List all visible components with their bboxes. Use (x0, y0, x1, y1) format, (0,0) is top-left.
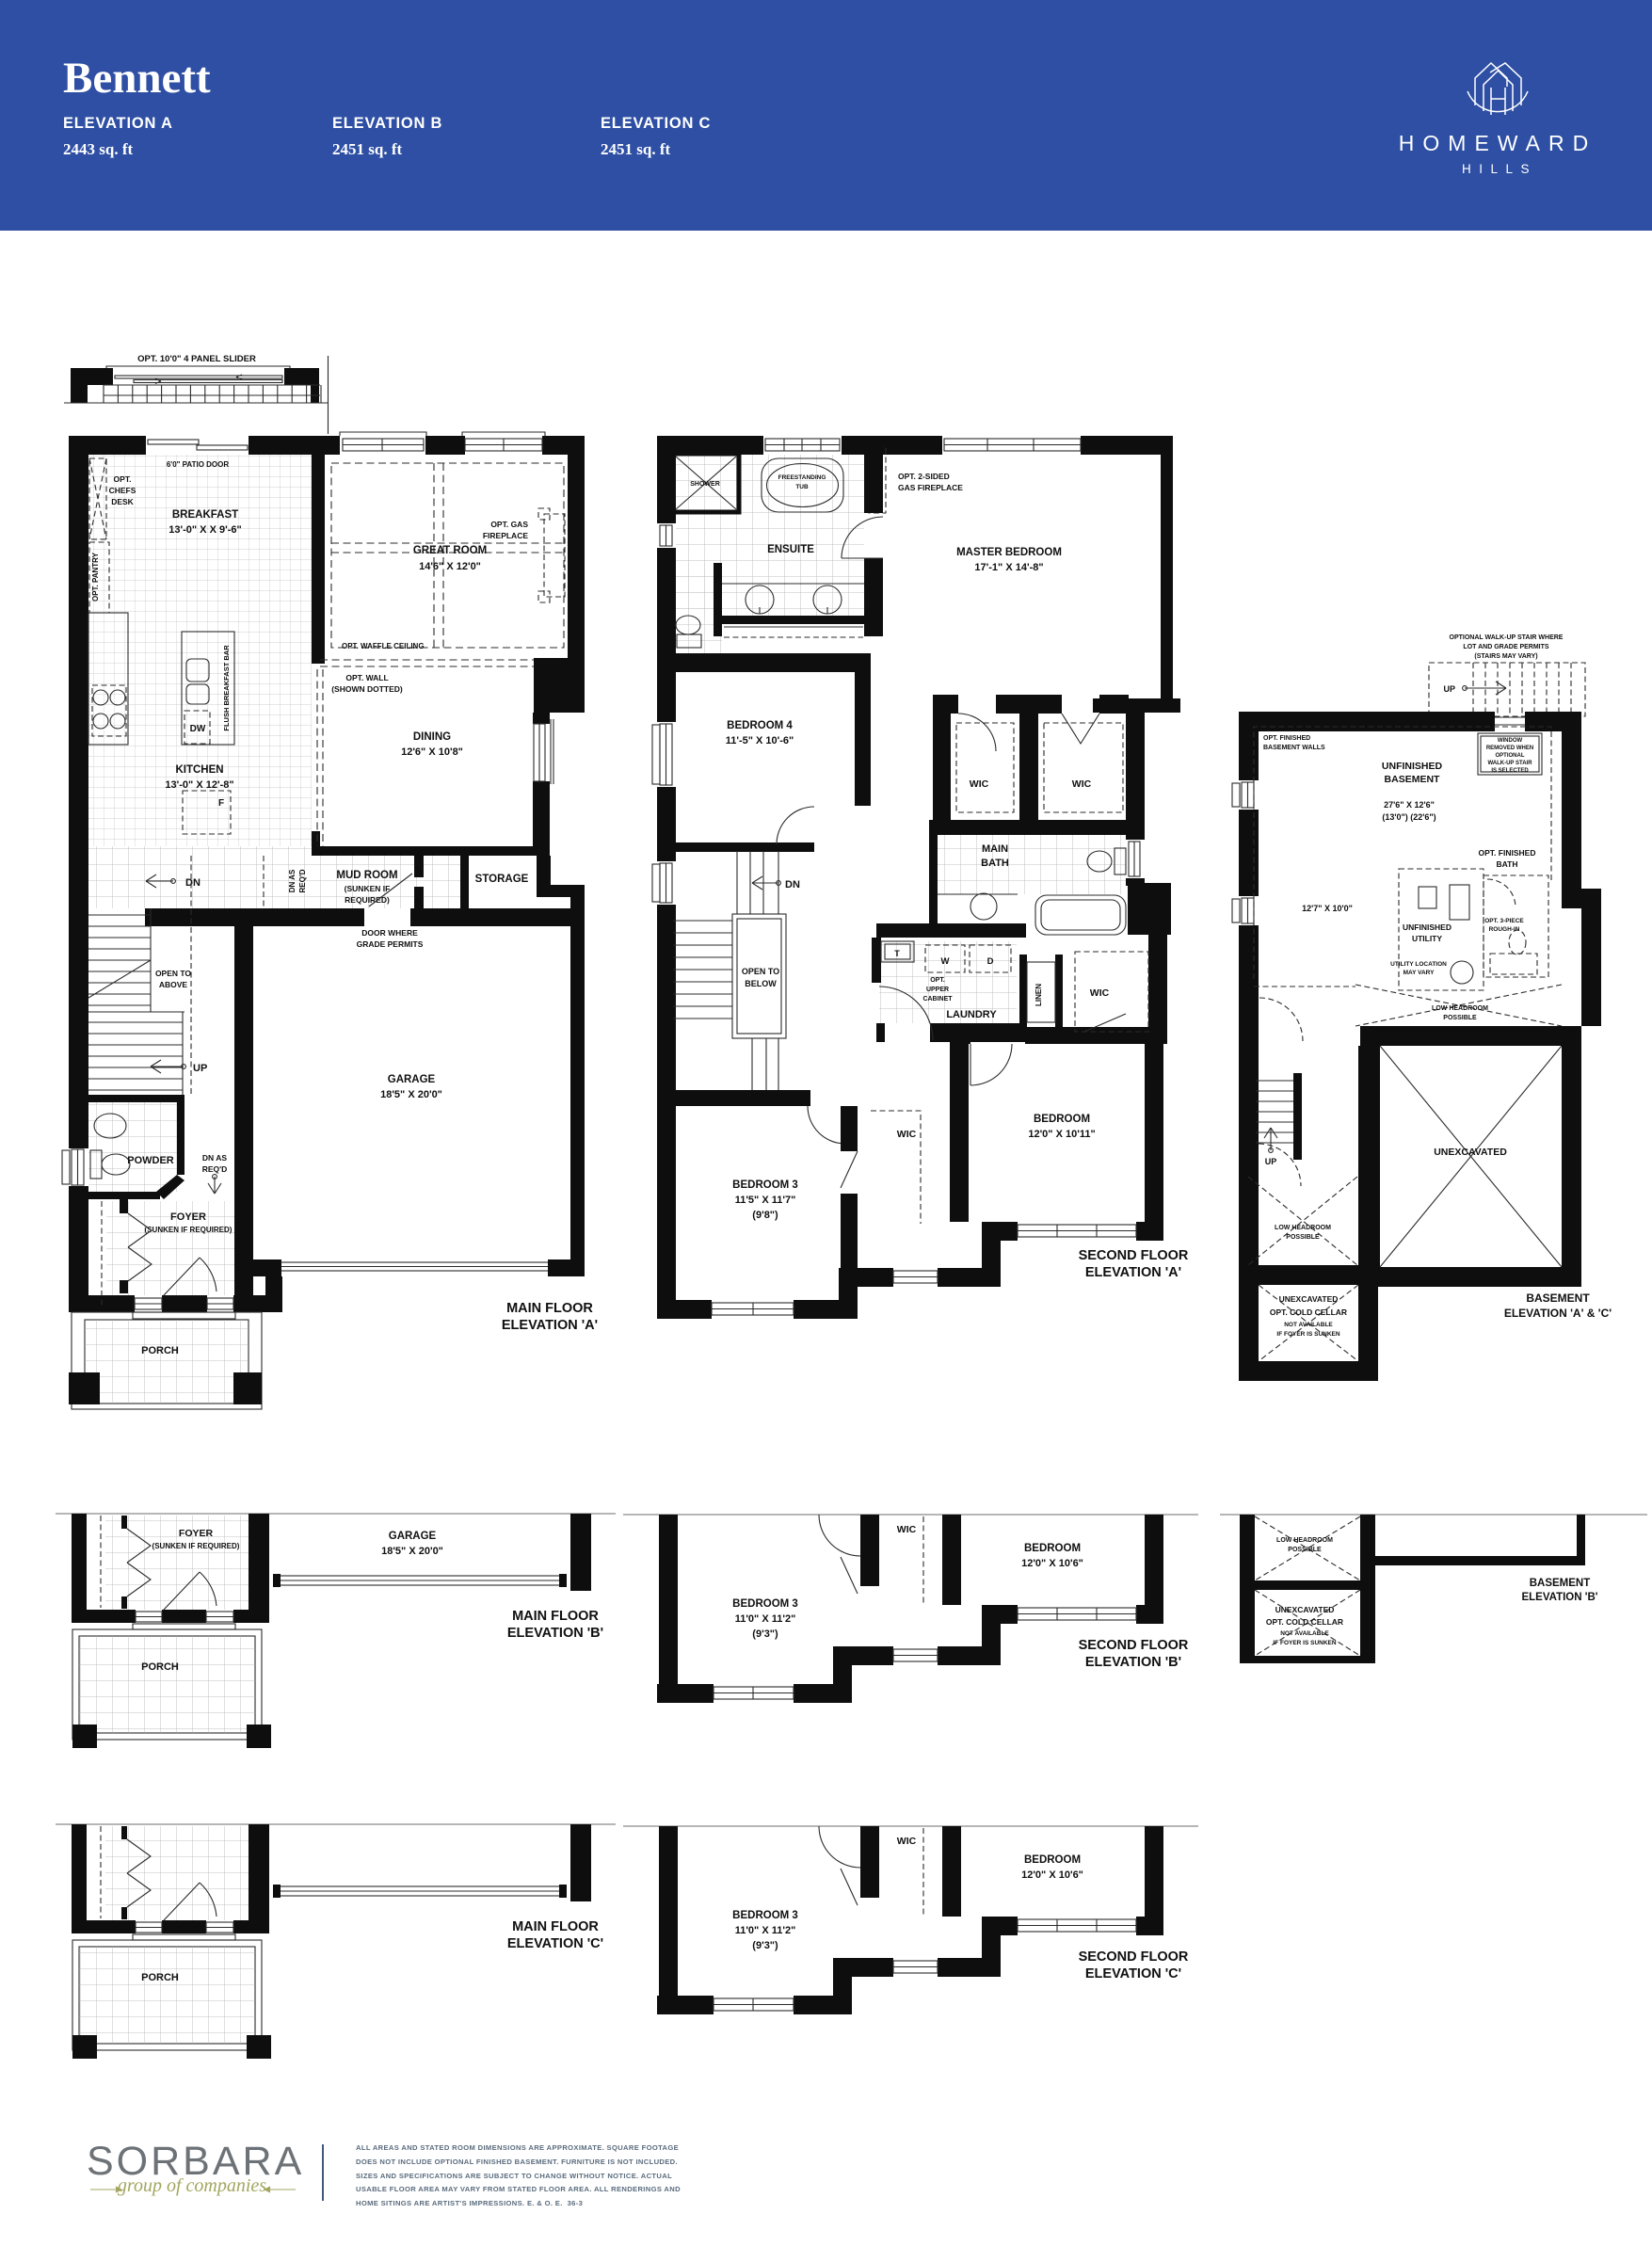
svg-text:IF FOYER IS SUNKEN: IF FOYER IS SUNKEN (1276, 1331, 1339, 1338)
svg-text:BATH: BATH (981, 858, 1009, 869)
svg-text:12'0" X 10'6": 12'0" X 10'6" (1021, 1558, 1083, 1569)
svg-text:PORCH: PORCH (141, 1345, 179, 1356)
svg-text:13'-0" X 12'-8": 13'-0" X 12'-8" (165, 779, 233, 791)
svg-text:ELEVATION 'B': ELEVATION 'B' (1521, 1592, 1597, 1603)
svg-text:D: D (987, 956, 994, 967)
svg-text:LOT AND GRADE PERMITS: LOT AND GRADE PERMITS (1463, 644, 1548, 650)
svg-text:POSSIBLE: POSSIBLE (1286, 1234, 1320, 1241)
svg-text:LAUNDRY: LAUNDRY (946, 1009, 997, 1020)
svg-text:OPT. COLD CELLAR: OPT. COLD CELLAR (1270, 1307, 1347, 1317)
svg-text:WINDOW: WINDOW (1498, 738, 1523, 744)
svg-text:OPEN TO: OPEN TO (742, 967, 779, 976)
svg-text:WIC: WIC (897, 1524, 917, 1535)
svg-text:SECOND FLOOR: SECOND FLOOR (1079, 1248, 1189, 1263)
svg-text:BASEMENT: BASEMENT (1530, 1578, 1591, 1589)
svg-text:UTILITY: UTILITY (1412, 934, 1442, 943)
svg-text:BEDROOM: BEDROOM (1034, 1114, 1090, 1125)
svg-text:WIC: WIC (897, 1836, 917, 1847)
svg-text:WIC: WIC (1090, 987, 1110, 999)
svg-text:SHOWER: SHOWER (690, 481, 720, 488)
svg-text:FOYER: FOYER (170, 1211, 206, 1223)
svg-text:(9'8"): (9'8") (752, 1210, 778, 1221)
svg-text:FOYER: FOYER (179, 1528, 214, 1539)
svg-text:UTILITY LOCATION: UTILITY LOCATION (1390, 961, 1447, 968)
svg-text:18'5" X 20'0": 18'5" X 20'0" (380, 1089, 442, 1100)
svg-text:OPT. FINISHED: OPT. FINISHED (1263, 735, 1310, 742)
svg-text:SECOND FLOOR: SECOND FLOOR (1079, 1638, 1189, 1653)
svg-text:NOT AVAILABLE: NOT AVAILABLE (1280, 1630, 1329, 1637)
svg-text:ELEVATION 'A': ELEVATION 'A' (1085, 1265, 1181, 1280)
svg-text:STORAGE: STORAGE (475, 874, 529, 885)
svg-text:DESK: DESK (111, 497, 134, 506)
svg-text:REQ'D: REQ'D (202, 1164, 228, 1174)
svg-text:BEDROOM: BEDROOM (1024, 1543, 1081, 1554)
svg-text:DOOR WHERE: DOOR WHERE (361, 928, 418, 938)
svg-text:(SHOWN DOTTED): (SHOWN DOTTED) (331, 684, 403, 694)
svg-text:LOW HEADROOM: LOW HEADROOM (1432, 1005, 1488, 1012)
svg-text:GARAGE: GARAGE (388, 1074, 436, 1085)
svg-text:14'6" X 12'0": 14'6" X 12'0" (419, 561, 481, 572)
svg-text:DN AS: DN AS (202, 1153, 227, 1163)
svg-text:ELEVATION 'B': ELEVATION 'B' (507, 1626, 603, 1641)
svg-text:OPT. FINISHED: OPT. FINISHED (1479, 848, 1536, 858)
svg-text:(SUNKEN IF REQUIRED): (SUNKEN IF REQUIRED) (145, 1226, 233, 1234)
svg-text:DW: DW (190, 724, 206, 734)
svg-text:LOW HEADROOM: LOW HEADROOM (1275, 1225, 1331, 1231)
svg-text:NOT AVAILABLE: NOT AVAILABLE (1284, 1322, 1333, 1328)
svg-text:BEDROOM 3: BEDROOM 3 (732, 1910, 798, 1921)
svg-text:17'-1" X 14'-8": 17'-1" X 14'-8" (974, 562, 1043, 573)
svg-text:WIC: WIC (970, 778, 989, 790)
svg-text:F: F (218, 798, 224, 809)
svg-text:12'0" X 10'11": 12'0" X 10'11" (1028, 1129, 1095, 1140)
svg-text:BASEMENT: BASEMENT (1385, 774, 1441, 785)
svg-text:POSSIBLE: POSSIBLE (1443, 1015, 1477, 1021)
svg-text:MAIN FLOOR: MAIN FLOOR (506, 1301, 593, 1316)
svg-text:REQUIRED): REQUIRED) (345, 895, 390, 905)
svg-text:UNEXCAVATED: UNEXCAVATED (1279, 1294, 1339, 1304)
svg-text:MAY VARY: MAY VARY (1403, 970, 1435, 976)
svg-text:CHEFS: CHEFS (109, 486, 136, 495)
svg-text:6'0" PATIO DOOR: 6'0" PATIO DOOR (167, 460, 230, 469)
svg-text:SECOND FLOOR: SECOND FLOOR (1079, 1949, 1189, 1965)
svg-text:DN: DN (785, 879, 800, 890)
svg-text:T: T (894, 949, 900, 958)
svg-text:UP: UP (193, 1063, 207, 1074)
svg-text:18'5" X 20'0": 18'5" X 20'0" (381, 1546, 443, 1557)
svg-text:BASEMENT WALLS: BASEMENT WALLS (1263, 745, 1325, 751)
svg-text:BELOW: BELOW (745, 979, 777, 988)
svg-text:(SUNKEN IF REQUIRED): (SUNKEN IF REQUIRED) (152, 1542, 240, 1550)
svg-text:12'6" X 10'8": 12'6" X 10'8" (401, 746, 463, 758)
svg-text:(13'0") (22'6"): (13'0") (22'6") (1382, 812, 1435, 822)
svg-text:DN AS: DN AS (288, 869, 297, 892)
svg-text:MAIN FLOOR: MAIN FLOOR (512, 1919, 599, 1934)
svg-text:UPPER: UPPER (926, 987, 949, 993)
svg-text:OPEN TO: OPEN TO (155, 969, 191, 978)
svg-text:UNFINISHED: UNFINISHED (1403, 922, 1452, 932)
svg-text:WALK-UP STAIR: WALK-UP STAIR (1487, 761, 1532, 766)
svg-text:OPTIONAL: OPTIONAL (1496, 753, 1525, 759)
svg-text:BEDROOM 3: BEDROOM 3 (732, 1598, 798, 1610)
svg-text:DINING: DINING (413, 731, 451, 743)
svg-text:FREESTANDING: FREESTANDING (778, 474, 826, 481)
svg-text:BATH: BATH (1497, 859, 1518, 869)
svg-text:UNEXCAVATED: UNEXCAVATED (1434, 1147, 1507, 1158)
svg-text:ELEVATION 'A': ELEVATION 'A' (502, 1318, 598, 1333)
svg-text:PORCH: PORCH (141, 1661, 179, 1673)
svg-text:ELEVATION 'C': ELEVATION 'C' (507, 1936, 603, 1951)
svg-text:ELEVATION 'A' & 'C': ELEVATION 'A' & 'C' (1504, 1307, 1612, 1320)
svg-text:MUD ROOM: MUD ROOM (336, 870, 397, 881)
svg-text:TUB: TUB (795, 484, 809, 490)
svg-text:POSSIBLE: POSSIBLE (1288, 1547, 1322, 1553)
svg-text:12'7" X 10'0": 12'7" X 10'0" (1302, 904, 1353, 913)
svg-text:REMOVED WHEN: REMOVED WHEN (1486, 746, 1533, 751)
svg-text:W: W (941, 956, 950, 967)
svg-text:POWDER: POWDER (127, 1155, 174, 1166)
svg-text:BEDROOM 4: BEDROOM 4 (727, 720, 793, 731)
svg-text:12'0" X 10'6": 12'0" X 10'6" (1021, 1869, 1083, 1881)
svg-text:BEDROOM 3: BEDROOM 3 (732, 1179, 798, 1191)
svg-text:OPTIONAL WALK-UP STAIR WHERE: OPTIONAL WALK-UP STAIR WHERE (1450, 634, 1564, 641)
svg-text:PORCH: PORCH (141, 1972, 179, 1983)
svg-text:IF FOYER IS SUNKEN: IF FOYER IS SUNKEN (1273, 1640, 1336, 1646)
svg-text:BEDROOM: BEDROOM (1024, 1854, 1081, 1866)
svg-text:FIREPLACE: FIREPLACE (483, 531, 529, 540)
svg-text:UNFINISHED: UNFINISHED (1382, 761, 1443, 772)
svg-text:(9'3"): (9'3") (752, 1940, 778, 1951)
svg-text:OPT. 10'0" 4 PANEL SLIDER: OPT. 10'0" 4 PANEL SLIDER (137, 354, 256, 364)
svg-text:OPT.: OPT. (114, 474, 132, 484)
svg-text:OPT. WALL: OPT. WALL (345, 673, 388, 682)
svg-text:OPT. WAFFLE CEILING: OPT. WAFFLE CEILING (342, 642, 425, 650)
svg-text:MASTER BEDROOM: MASTER BEDROOM (956, 547, 1062, 558)
svg-text:ROUGH-IN: ROUGH-IN (1489, 926, 1520, 933)
svg-text:ABOVE: ABOVE (159, 980, 188, 989)
svg-text:11'5" X 11'7": 11'5" X 11'7" (735, 1195, 796, 1206)
svg-text:(SUNKEN IF: (SUNKEN IF (345, 884, 391, 893)
svg-text:ENSUITE: ENSUITE (767, 544, 814, 555)
svg-text:(9'3"): (9'3") (752, 1628, 778, 1640)
svg-text:OPT. 3-PIECE: OPT. 3-PIECE (1484, 918, 1524, 924)
svg-text:(STAIRS MAY VARY): (STAIRS MAY VARY) (1474, 653, 1537, 660)
svg-text:LINEN: LINEN (1035, 984, 1043, 1006)
svg-text:DN: DN (185, 877, 200, 889)
svg-text:OPT. GAS: OPT. GAS (490, 520, 528, 529)
svg-text:BASEMENT: BASEMENT (1526, 1291, 1590, 1305)
svg-text:FLUSH BREAKFAST BAR: FLUSH BREAKFAST BAR (222, 645, 231, 731)
svg-text:CABINET: CABINET (922, 996, 953, 1003)
svg-text:27'6" X 12'6": 27'6" X 12'6" (1384, 800, 1435, 810)
svg-text:WIC: WIC (1072, 778, 1092, 790)
svg-text:OPT. COLD CELLAR: OPT. COLD CELLAR (1266, 1617, 1343, 1627)
svg-text:11'0" X 11'2": 11'0" X 11'2" (735, 1613, 796, 1625)
svg-text:ELEVATION 'B': ELEVATION 'B' (1085, 1655, 1181, 1670)
svg-text:OPT.: OPT. (930, 977, 945, 984)
svg-text:GRADE PERMITS: GRADE PERMITS (357, 939, 424, 949)
svg-text:GARAGE: GARAGE (389, 1531, 437, 1542)
svg-text:UP: UP (1265, 1157, 1277, 1166)
svg-text:OPT. 2-SIDED: OPT. 2-SIDED (898, 472, 950, 481)
svg-text:UP: UP (1443, 684, 1455, 694)
svg-text:ELEVATION 'C': ELEVATION 'C' (1085, 1966, 1181, 1981)
svg-text:GAS FIREPLACE: GAS FIREPLACE (898, 483, 963, 492)
svg-text:OPT. PANTRY: OPT. PANTRY (91, 552, 100, 602)
svg-text:REQ'D: REQ'D (298, 869, 307, 892)
svg-text:11'-5" X 10'-6": 11'-5" X 10'-6" (726, 735, 794, 746)
svg-text:LOW HEADROOM: LOW HEADROOM (1276, 1537, 1333, 1544)
svg-text:GREAT ROOM: GREAT ROOM (413, 545, 487, 556)
svg-text:11'0" X 11'2": 11'0" X 11'2" (735, 1925, 796, 1936)
svg-text:BREAKFAST: BREAKFAST (172, 509, 238, 521)
svg-text:UNEXCAVATED: UNEXCAVATED (1275, 1605, 1335, 1614)
svg-text:MAIN FLOOR: MAIN FLOOR (512, 1609, 599, 1624)
svg-text:KITCHEN: KITCHEN (175, 764, 223, 776)
svg-text:MAIN: MAIN (982, 843, 1008, 855)
svg-text:IS SELECTED: IS SELECTED (1491, 768, 1529, 774)
svg-text:13'-0" X X 9'-6": 13'-0" X X 9'-6" (168, 524, 241, 536)
svg-text:WIC: WIC (897, 1129, 917, 1140)
